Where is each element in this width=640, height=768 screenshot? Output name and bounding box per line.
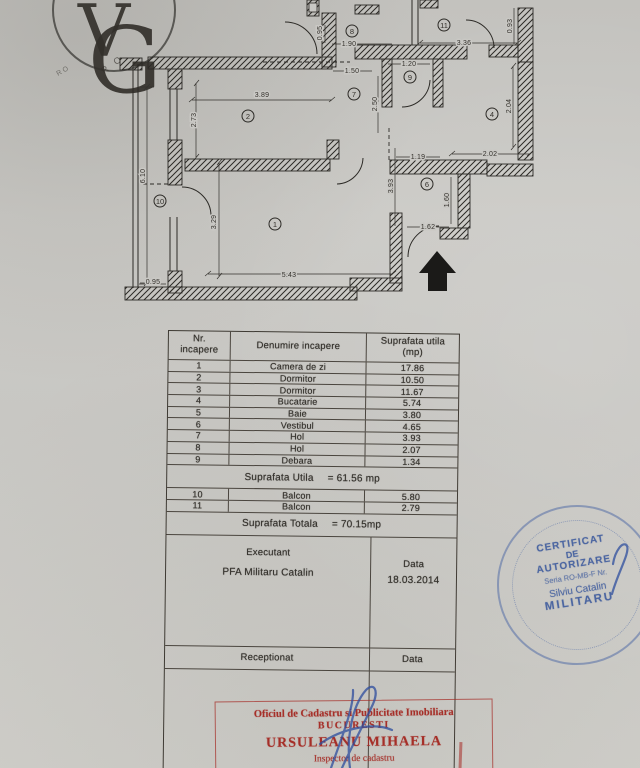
dimension-label: 0.95 bbox=[146, 279, 160, 286]
room-number: 8 bbox=[346, 25, 358, 37]
total-label: Suprafata Totala bbox=[242, 518, 318, 530]
room-nr: 3 bbox=[168, 383, 230, 394]
dimension-label: 0.95 bbox=[317, 26, 324, 40]
room-nr: 8 bbox=[168, 442, 230, 453]
dimension-label: 2.04 bbox=[506, 99, 513, 113]
svg-text:4: 4 bbox=[490, 110, 494, 119]
cadastre-office-stamp: Oficiul de Cadastru si Publicitate Imobi… bbox=[215, 699, 494, 768]
room-area: 3.93 bbox=[366, 433, 458, 445]
room-name: Vestibul bbox=[230, 419, 366, 431]
room-nr: 11 bbox=[167, 500, 229, 511]
dimension-label: 3.93 bbox=[388, 179, 395, 193]
north-arrow-icon bbox=[419, 251, 456, 291]
dimension-label: 3.29 bbox=[211, 215, 218, 229]
room-number: 2 bbox=[242, 110, 254, 122]
subtotal-label: Suprafata Utila bbox=[244, 472, 313, 484]
room-number: 9 bbox=[404, 71, 416, 83]
header-area: Suprafata utila (mp) bbox=[367, 333, 459, 362]
svg-text:6: 6 bbox=[425, 180, 429, 189]
room-area: 10.50 bbox=[366, 374, 458, 386]
date-label: Data bbox=[371, 558, 456, 570]
room-name: Hol bbox=[229, 443, 365, 455]
svg-text:11: 11 bbox=[440, 21, 448, 30]
door-nib bbox=[309, 3, 317, 12]
dimension-label: 3.89 bbox=[255, 92, 269, 99]
room-number: 10 bbox=[154, 195, 166, 207]
date-cell: Data 18.03.2014 bbox=[370, 537, 456, 648]
room-name: Debara bbox=[229, 454, 365, 466]
room-number: 6 bbox=[421, 178, 433, 190]
svg-text:2: 2 bbox=[246, 112, 250, 121]
room-nr: 10 bbox=[167, 488, 229, 499]
stamp-line: Inspector de cadastru bbox=[216, 753, 492, 766]
authorization-stamp: CERTIFICAT DE AUTORIZARE Seria RO-MB-F N… bbox=[485, 493, 640, 676]
dimension-label: 2.02 bbox=[483, 151, 497, 158]
subtotal-value: = 61.56 mp bbox=[328, 473, 380, 485]
svg-text:8: 8 bbox=[350, 27, 354, 36]
room-number: 11 bbox=[438, 19, 450, 31]
room-name: Balcon bbox=[229, 501, 365, 513]
executant-section: Executant PFA Militaru Catalin Data 18.0… bbox=[165, 535, 456, 650]
room-nr: 6 bbox=[168, 418, 230, 429]
date-value: 18.03.2014 bbox=[371, 574, 456, 586]
reception-label: Receptionat bbox=[165, 646, 370, 671]
room-nr: 1 bbox=[169, 360, 231, 371]
dimension-label: 2.50 bbox=[372, 97, 379, 111]
room-area: 11.67 bbox=[366, 386, 458, 398]
dimension-label: 1.19 bbox=[411, 154, 425, 161]
svg-text:10: 10 bbox=[156, 197, 164, 206]
room-area: 5.74 bbox=[366, 397, 458, 409]
executant-cell: Executant PFA Militaru Catalin bbox=[165, 535, 371, 647]
room-number: 1 bbox=[269, 218, 281, 230]
stamp-line: BUCURESTI bbox=[216, 719, 492, 733]
dimension-label: 2.73 bbox=[191, 113, 198, 127]
room-area: 2.07 bbox=[365, 444, 457, 456]
scanned-document-sheet: V G R O RO bbox=[0, 0, 640, 768]
room-name: Dormitor bbox=[230, 372, 366, 384]
room-nr: 7 bbox=[168, 430, 230, 441]
svg-text:1: 1 bbox=[273, 220, 277, 229]
room-area: 4.65 bbox=[366, 421, 458, 433]
room-number: 7 bbox=[348, 88, 360, 100]
room-name: Camera de zi bbox=[230, 361, 366, 373]
room-area: 5.80 bbox=[365, 491, 457, 503]
reception-date-label: Data bbox=[370, 648, 455, 671]
room-area: 17.86 bbox=[366, 362, 458, 374]
header-nr: Nr. incapere bbox=[169, 331, 231, 360]
dimension-label: 1.20 bbox=[402, 61, 416, 68]
room-area: 2.79 bbox=[365, 502, 457, 514]
dimension-label: 3.36 bbox=[457, 40, 471, 47]
room-name: Hol bbox=[230, 431, 366, 443]
room-number: 4 bbox=[486, 108, 498, 120]
room-nr: 2 bbox=[168, 372, 230, 383]
faint-imprint-2: RO bbox=[56, 64, 72, 77]
room-name: Dormitor bbox=[230, 384, 366, 396]
dimension-label: 1.90 bbox=[342, 41, 356, 48]
room-name: Bucatarie bbox=[230, 396, 366, 408]
svg-text:7: 7 bbox=[352, 90, 356, 99]
svg-text:9: 9 bbox=[408, 73, 412, 82]
dimension-label: 0.93 bbox=[507, 19, 514, 33]
stamp-line: URSULEANU MIHAELA bbox=[216, 734, 492, 753]
dimension-label: 6.10 bbox=[140, 169, 147, 183]
dimension-label: 5.43 bbox=[282, 272, 296, 279]
header-name: Denumire incapere bbox=[231, 332, 367, 362]
room-area: 3.80 bbox=[366, 409, 458, 421]
table-header-row: Nr. incapere Denumire incapere Suprafata… bbox=[169, 331, 459, 364]
floor-plan: V G R O RO bbox=[0, 0, 640, 322]
room-name: Baie bbox=[230, 408, 366, 420]
room-nr: 5 bbox=[168, 407, 230, 418]
dimension-label: 1.60 bbox=[444, 193, 451, 207]
room-name: Balcon bbox=[229, 489, 365, 501]
dimension-label: 1.50 bbox=[345, 68, 359, 75]
total-value: = 70.15mp bbox=[332, 519, 381, 531]
room-nr: 4 bbox=[168, 395, 230, 406]
room-nr: 9 bbox=[167, 454, 229, 465]
dimension-label: 1.62 bbox=[421, 224, 435, 231]
room-area: 1.34 bbox=[365, 456, 457, 468]
executant-name: PFA Militaru Catalin bbox=[166, 566, 370, 579]
executant-label: Executant bbox=[166, 546, 370, 559]
